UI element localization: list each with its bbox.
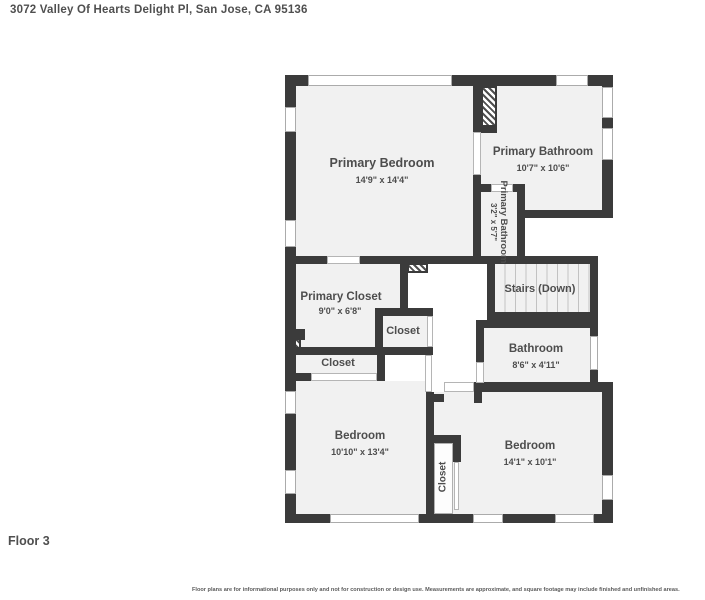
closet-mid-label: Closet: [386, 325, 420, 337]
bedroom-left-dims: 10'10" x 13'4": [331, 447, 389, 457]
wall-closetleft-bottom: [285, 373, 311, 381]
bathroom-floor: [484, 328, 590, 382]
wall-toilet-right: [517, 184, 525, 264]
primary-closet-dims: 9'0" x 6'8": [319, 306, 362, 316]
hatch-column: [481, 86, 497, 127]
window-left-2: [285, 220, 296, 247]
primary-bathroom-small-label: Primary Bathroom 3'2" x 5'7": [489, 181, 509, 264]
wall-bath-left: [476, 320, 484, 362]
window-left-4: [285, 470, 296, 494]
bathroom-dims: 8'6" x 4'11": [512, 360, 559, 370]
wall-hatch-nub: [296, 329, 305, 340]
door-closet-mid: [427, 316, 433, 347]
window-right-3: [602, 475, 613, 500]
primary-bathroom-dims: 10'7" x 10'6": [517, 163, 570, 173]
door-closet-left: [311, 373, 377, 381]
window-bottom-1: [330, 514, 419, 523]
window-left-3: [285, 391, 296, 414]
wall-bedright-top: [474, 382, 613, 392]
primary-bedroom-floor: [296, 86, 473, 256]
wall-pbed-pbath-divider: [473, 75, 481, 132]
closet-left-label: Closet: [321, 357, 355, 369]
primary-bedroom-dims: 14'9" x 14'4": [356, 175, 409, 185]
wall-pbath-bottom: [517, 210, 613, 218]
wall-hall-vert: [400, 264, 408, 312]
closet-bottom-label: Closet: [438, 462, 449, 493]
bedroom-right-dims: 14'1" x 10'1": [504, 457, 557, 467]
disclaimer-text: Floor plans are for informational purpos…: [192, 587, 705, 593]
wall-bedleft-nub: [434, 394, 444, 402]
wall-left: [285, 75, 296, 523]
window-top-right: [556, 75, 588, 86]
floor-label: Floor 3: [8, 534, 50, 548]
wall-bedright-hook: [474, 382, 482, 403]
wall-right-bottom: [602, 382, 613, 523]
bedroom-right-label: Bedroom: [505, 440, 555, 452]
hatch-hall: [407, 263, 428, 273]
primary-bedroom-label: Primary Bedroom: [330, 156, 435, 170]
window-right-2: [602, 128, 613, 160]
door-bathroom: [476, 362, 484, 383]
wall-bedleft-right: [426, 392, 434, 514]
window-top-long: [308, 75, 452, 86]
wall-toilet-left: [473, 175, 481, 256]
wall-closetleft-post: [377, 355, 385, 381]
wall-stairs-bottom: [487, 312, 598, 320]
floorplan-page: { "header": { "address": "3072 Valley Of…: [0, 0, 705, 600]
window-bottom-2: [473, 514, 503, 523]
wall-closetmid-top: [375, 308, 433, 316]
door-primary-closet: [327, 256, 360, 264]
door-bedroom-right: [444, 382, 474, 392]
primary-closet-label: Primary Closet: [300, 291, 381, 303]
window-bath-right: [590, 336, 598, 370]
wall-bath-top: [476, 320, 598, 328]
wall-closetbottom-right: [453, 435, 461, 462]
wall-closets-mid-horiz: [285, 347, 433, 355]
window-left-1: [285, 107, 296, 132]
floorplan-canvas: Primary Bedroom 14'9" x 14'4" Primary Ba…: [0, 0, 705, 600]
window-bottom-3: [555, 514, 594, 523]
window-right-1: [602, 87, 613, 118]
door-primary-bathroom: [473, 132, 481, 175]
primary-bathroom-label: Primary Bathroom: [493, 146, 593, 158]
bathroom-label: Bathroom: [509, 343, 563, 355]
door-bedroom-left: [425, 355, 432, 392]
wall-stairs-left: [487, 256, 495, 320]
door-closet-bottom: [454, 462, 459, 510]
bedroom-left-label: Bedroom: [335, 430, 385, 442]
stairs-label: Stairs (Down): [505, 283, 576, 295]
